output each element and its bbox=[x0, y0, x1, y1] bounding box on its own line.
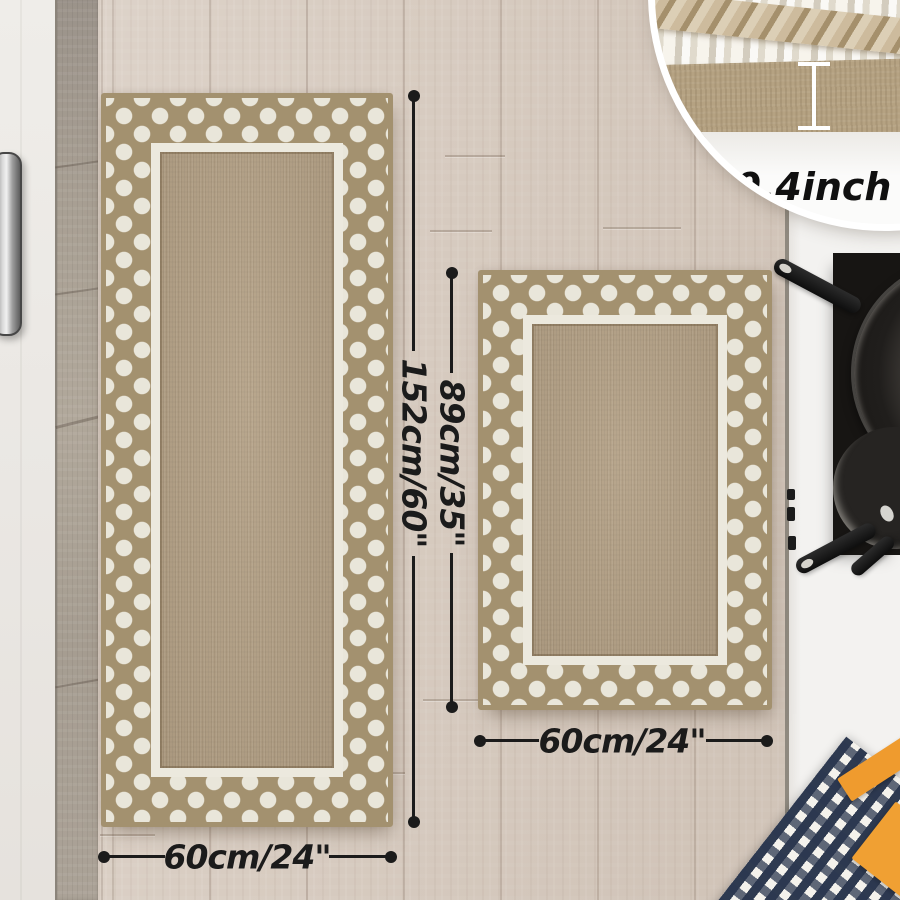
inset-rug-base-edge bbox=[648, 53, 900, 140]
hinge-mark bbox=[788, 536, 796, 550]
dim-endpoint-dot bbox=[408, 816, 420, 828]
rug-large-width-label: 60cm/24" bbox=[163, 841, 330, 874]
plank-end-seam bbox=[100, 834, 155, 836]
rug-small-field bbox=[523, 315, 727, 665]
dim-endpoint-dot bbox=[98, 851, 110, 863]
dim-endpoint-dot bbox=[408, 90, 420, 102]
dim-line-small-width bbox=[483, 739, 539, 742]
rug-small-length-label: 89cm/35" bbox=[436, 379, 469, 546]
rug-small bbox=[478, 270, 772, 710]
plank-end-seam bbox=[603, 227, 681, 229]
dim-line-small-length bbox=[450, 553, 453, 705]
dim-line-large-length bbox=[412, 556, 415, 821]
plank-end-seam bbox=[430, 230, 492, 232]
product-photo-scene: 152cm/60" 89cm/35" 60cm/24" 60cm/24" 0.4… bbox=[0, 0, 900, 900]
wall-seam bbox=[20, 0, 22, 900]
hinge-mark bbox=[787, 507, 795, 521]
handle-hole bbox=[778, 262, 793, 275]
dim-line-large-width bbox=[107, 855, 165, 858]
rug-large-field bbox=[151, 143, 343, 777]
appliance-handle bbox=[0, 152, 22, 336]
dim-line-small-width bbox=[706, 739, 765, 742]
dim-endpoint-dot bbox=[446, 701, 458, 713]
plank-end-seam bbox=[445, 155, 505, 157]
inset-detail-circle: 0.4inch bbox=[648, 0, 900, 231]
marker-stem bbox=[812, 62, 816, 130]
dim-endpoint-dot bbox=[385, 851, 397, 863]
rug-small-width-label: 60cm/24" bbox=[538, 725, 705, 758]
dim-line-large-length bbox=[412, 99, 415, 351]
rug-large-length-label: 152cm/60" bbox=[398, 359, 431, 548]
dim-endpoint-dot bbox=[474, 735, 486, 747]
dim-endpoint-dot bbox=[446, 267, 458, 279]
wall-panel bbox=[0, 0, 55, 900]
rug-large bbox=[101, 93, 393, 827]
thickness-marker-icon bbox=[798, 62, 830, 130]
dim-line-large-width bbox=[329, 855, 389, 858]
handle-hole bbox=[800, 557, 815, 570]
thickness-label: 0.4inch bbox=[735, 165, 892, 209]
side-plank-strip bbox=[55, 0, 100, 900]
dim-endpoint-dot bbox=[761, 735, 773, 747]
dim-line-small-length bbox=[450, 276, 453, 373]
hinge-mark bbox=[787, 489, 795, 500]
marker-cap bbox=[798, 126, 830, 130]
